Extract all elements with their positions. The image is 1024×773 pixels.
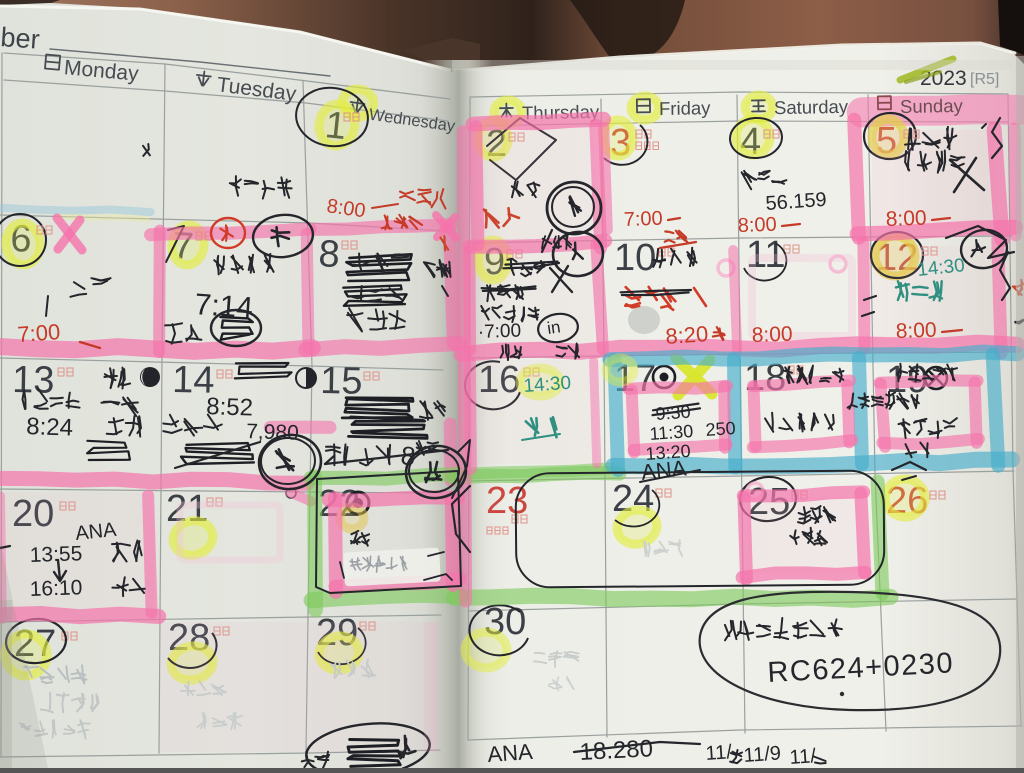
svg-text:ber: ber [0, 22, 41, 55]
svg-text:8:52: 8:52 [206, 393, 254, 422]
svg-text:ANA: ANA [74, 519, 118, 545]
svg-text:8:00: 8:00 [895, 319, 937, 343]
svg-text:8:00: 8:00 [737, 214, 777, 237]
svg-text:16:10: 16:10 [29, 576, 82, 601]
svg-text:13:55: 13:55 [29, 542, 82, 567]
svg-text:in: in [546, 317, 562, 338]
svg-text:·7:00: ·7:00 [477, 320, 521, 342]
svg-text:10: 10 [614, 237, 656, 279]
svg-text:13: 13 [12, 359, 55, 402]
svg-text:Sunday: Sunday [900, 95, 964, 117]
svg-text:8:24: 8:24 [26, 413, 74, 442]
svg-text:8:00: 8:00 [885, 207, 927, 231]
svg-text:8: 8 [318, 233, 341, 276]
svg-text:11/: 11/ [705, 741, 733, 765]
svg-text:11/9: 11/9 [743, 742, 782, 767]
svg-text:7:00: 7:00 [17, 319, 61, 347]
svg-text:Friday: Friday [659, 97, 712, 119]
svg-text:7:00: 7:00 [623, 208, 663, 231]
svg-text:[R5]: [R5] [970, 71, 999, 88]
svg-text:Saturday: Saturday [774, 96, 849, 118]
svg-text:8:00: 8:00 [751, 323, 793, 347]
svg-text:56.159: 56.159 [765, 189, 828, 215]
svg-text:15: 15 [320, 360, 363, 403]
svg-text:250: 250 [705, 418, 736, 440]
svg-text:8:20: 8:20 [665, 321, 709, 349]
svg-text:14:30: 14:30 [523, 373, 572, 397]
svg-text:ANA: ANA [487, 739, 534, 767]
